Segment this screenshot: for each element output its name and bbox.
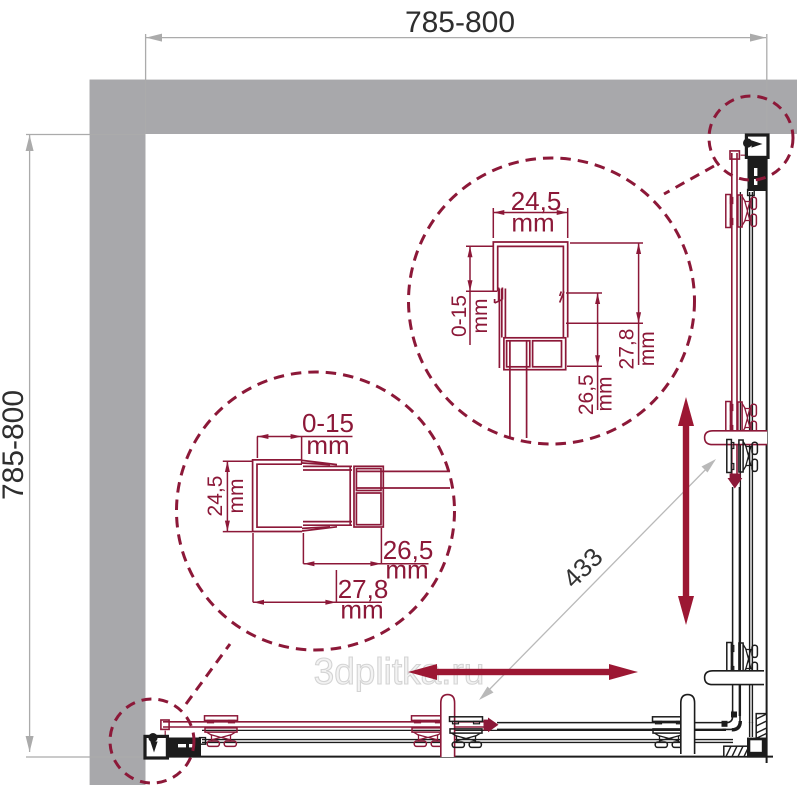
svg-text:mm: mm — [593, 377, 616, 412]
svg-text:mm: mm — [306, 430, 349, 460]
svg-text:mm: mm — [385, 555, 428, 585]
svg-text:mm: mm — [225, 479, 248, 514]
svg-text:mm: mm — [469, 299, 492, 334]
svg-text:0-15: 0-15 — [448, 295, 471, 337]
svg-text:mm: mm — [511, 208, 554, 238]
svg-text:mm: mm — [340, 595, 383, 625]
svg-text:785-800: 785-800 — [0, 390, 30, 500]
svg-text:mm: mm — [636, 331, 659, 366]
svg-text:785-800: 785-800 — [405, 6, 515, 39]
svg-text:24,5: 24,5 — [204, 476, 227, 517]
